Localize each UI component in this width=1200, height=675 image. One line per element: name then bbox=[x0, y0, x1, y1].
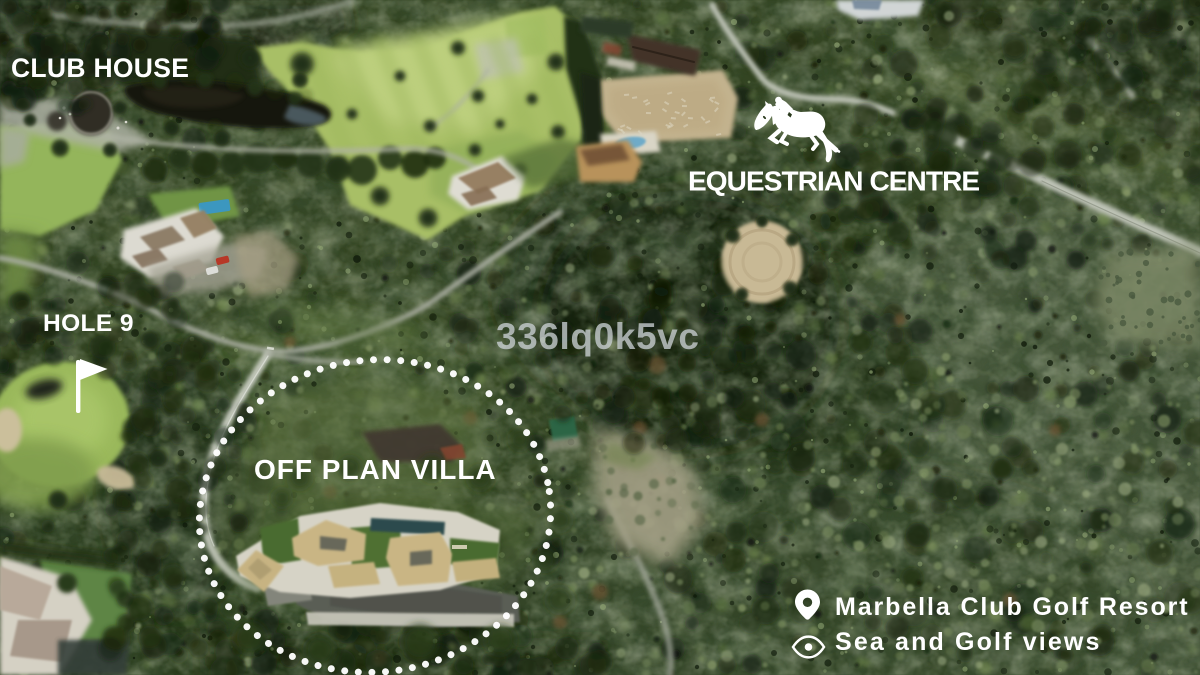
svg-text:336lq0k5vc: 336lq0k5vc bbox=[496, 316, 700, 357]
svg-text:EQUESTRIAN CENTRE: EQUESTRIAN CENTRE bbox=[688, 166, 979, 197]
svg-text:Marbella Club Golf Resort: Marbella Club Golf Resort bbox=[835, 593, 1189, 621]
svg-text:CLUB HOUSE: CLUB HOUSE bbox=[11, 53, 189, 83]
svg-text:Sea and Golf views: Sea and Golf views bbox=[835, 628, 1102, 656]
svg-text:HOLE 9: HOLE 9 bbox=[43, 310, 134, 337]
svg-text:OFF PLAN VILLA: OFF PLAN VILLA bbox=[254, 454, 497, 485]
